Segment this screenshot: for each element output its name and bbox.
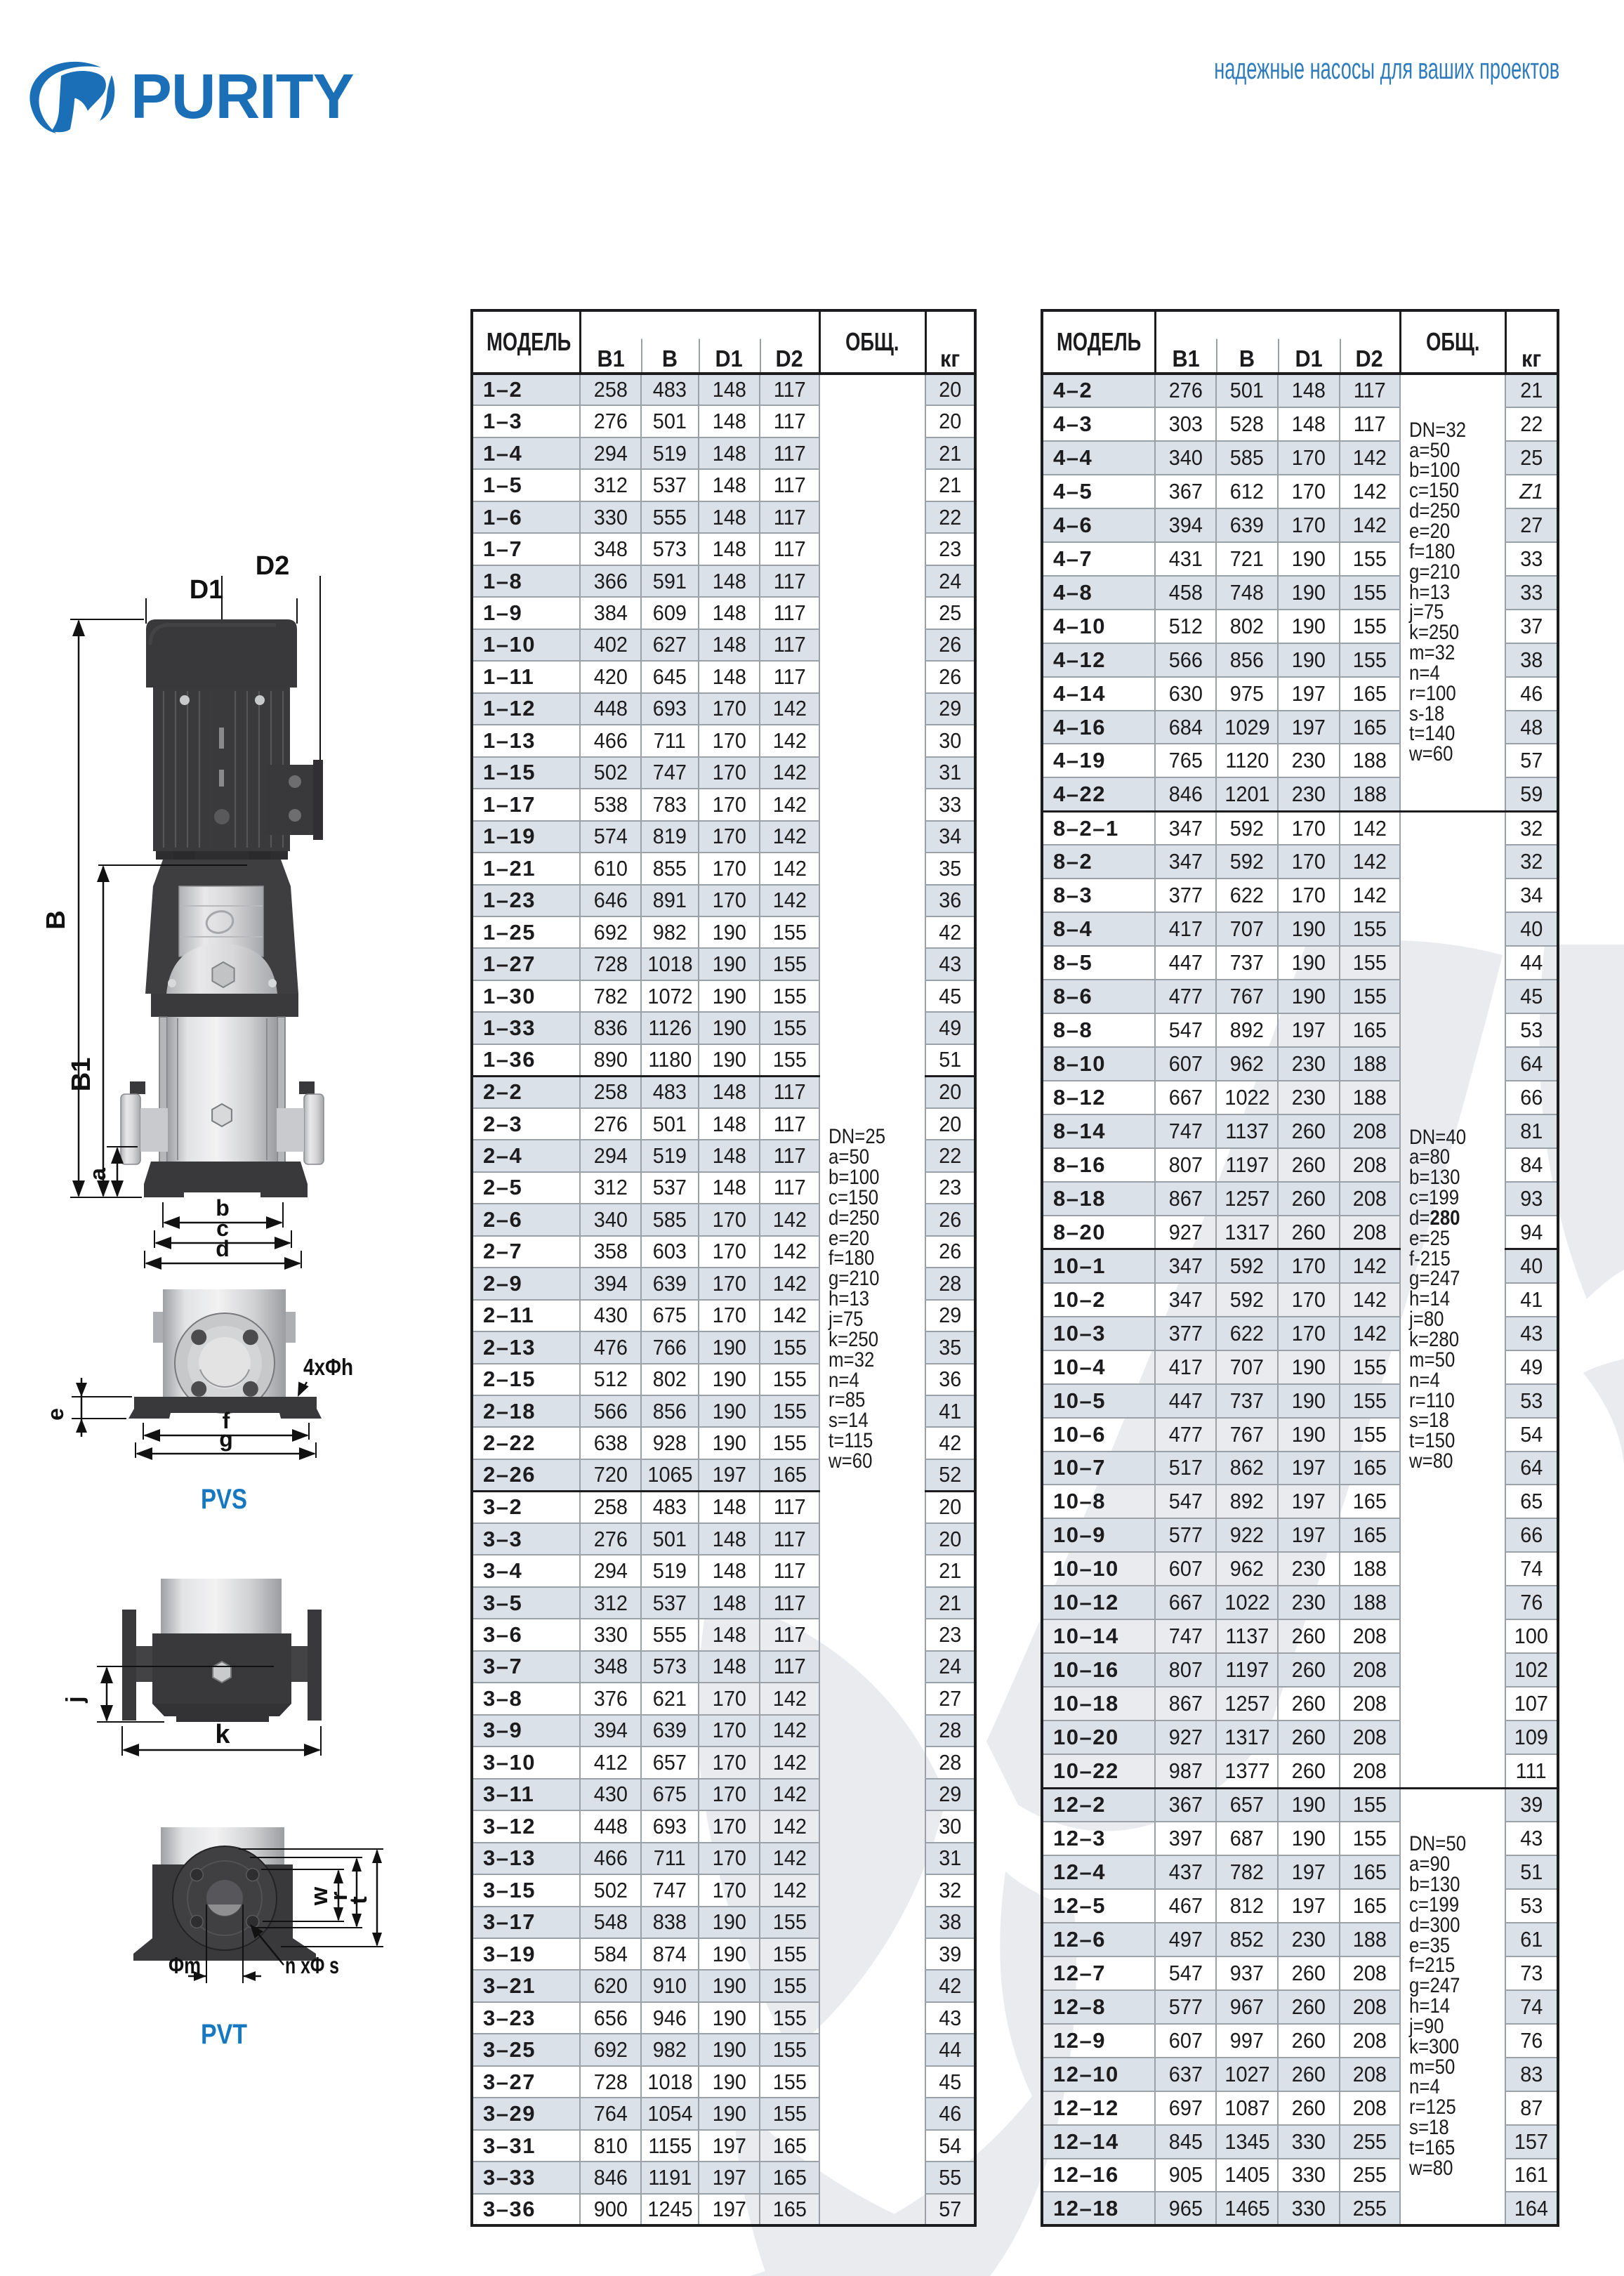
svg-text:w: w [306, 1886, 333, 1906]
svg-text:4xΦh: 4xΦh [303, 1354, 353, 1380]
svg-text:n xΦ s: n xΦ s [285, 1952, 339, 1978]
svg-text:e: e [43, 1408, 68, 1421]
svg-text:k: k [215, 1720, 230, 1749]
svg-text:PVS: PVS [201, 1484, 247, 1515]
svg-text:D1: D1 [190, 575, 224, 605]
svg-text:B: B [41, 910, 71, 929]
svg-text:d: d [216, 1236, 230, 1261]
svg-text:PVT: PVT [201, 2019, 247, 2050]
svg-text:a: a [85, 1168, 110, 1180]
svg-text:g: g [219, 1426, 233, 1452]
svg-text:j: j [62, 1696, 88, 1703]
svg-text:D2: D2 [256, 551, 290, 581]
svg-text:B1: B1 [67, 1058, 96, 1092]
